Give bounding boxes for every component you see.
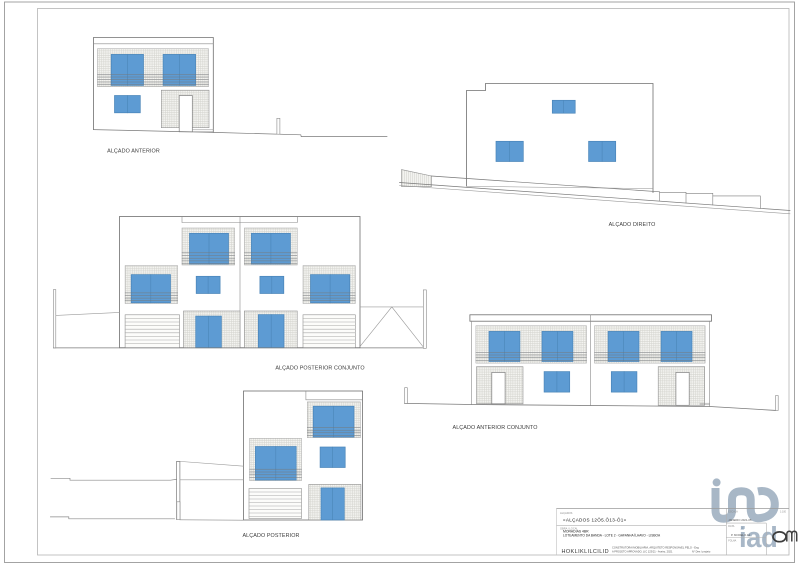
- svg-text:P. MODELO A1: P. MODELO A1: [731, 533, 751, 537]
- svg-text:ALÇADO ANTERIOR: ALÇADO ANTERIOR: [107, 149, 160, 155]
- svg-text:ALÇADO POSTERIOR CONJUNTO: ALÇADO POSTERIOR CONJUNTO: [275, 366, 364, 372]
- svg-text:ALÇADO ANTERIOR CONJUNTO: ALÇADO ANTERIOR CONJUNTO: [453, 425, 538, 431]
- svg-text:ALÇADOS: ALÇADOS: [560, 511, 573, 515]
- svg-text:JANEIRO 2021-05: JANEIRO 2021-05: [728, 518, 752, 522]
- svg-text:LOTEAMENTO DA BANDA - LOTE 2 -: LOTEAMENTO DA BANDA - LOTE 2 - GAFANHA Í…: [563, 534, 661, 538]
- svg-text:N° Des / projeto: N° Des / projeto: [692, 550, 711, 554]
- svg-text:ESCALA: ESCALA: [728, 511, 738, 514]
- svg-text:CONSTRUTORA IMOBILIARIA, ARQUI: CONSTRUTORA IMOBILIARIA, ARQUITETO RESPO…: [612, 546, 699, 550]
- svg-text:DATA: DATA: [728, 525, 734, 528]
- svg-text:A PROJETO APROVADO, LIC 123/21: A PROJETO APROVADO, LIC 123/21 - Aveiro,…: [612, 550, 673, 554]
- svg-text:ALÇADO DIREITO: ALÇADO DIREITO: [609, 222, 656, 228]
- svg-text:HOKLIKLILCILID: HOKLIKLILCILID: [562, 549, 609, 555]
- svg-text:«ALÇADOS 12Ō5.Ō13-Ō1»: «ALÇADOS 12Ō5.Ō13-Ō1»: [563, 516, 627, 522]
- svg-text:FOLHA: FOLHA: [728, 540, 736, 543]
- svg-text:ALÇADO POSTERIOR: ALÇADO POSTERIOR: [242, 533, 299, 539]
- svg-text:1:100: 1:100: [780, 511, 787, 514]
